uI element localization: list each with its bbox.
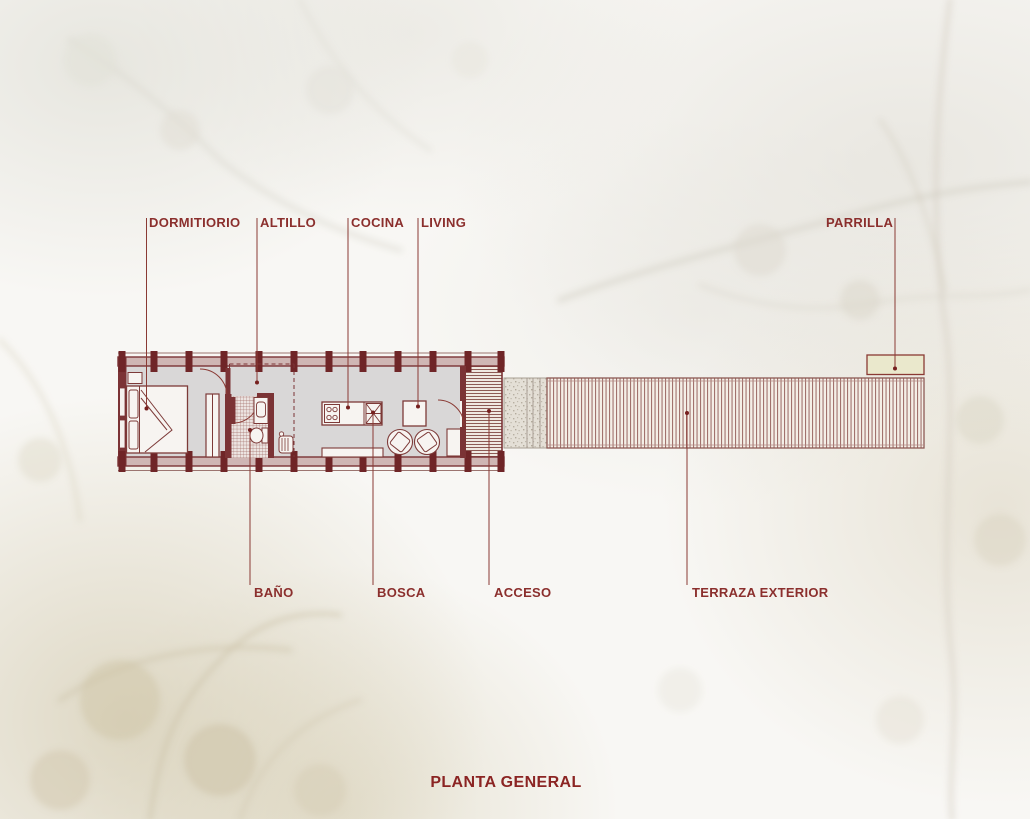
window-icon [120,420,125,448]
label-acceso: ACCESO [494,586,551,600]
bench-icon [322,448,383,457]
bottom-wall [118,457,504,466]
gravel-path-icon [504,378,547,448]
label-terraza-exterior: TERRAZA EXTERIOR [692,586,829,600]
toilet-icon [250,428,268,443]
bed-icon [127,386,188,453]
label-parrilla: PARRILLA [826,216,893,230]
label-living: LIVING [421,216,466,230]
chair-icon [388,430,413,455]
label-bosca: BOSCA [377,586,425,600]
chair-icon [415,430,440,455]
deck-planks-icon [547,378,924,448]
label-dormitorio: DORMITIORIO [149,216,240,230]
top-wall [118,357,504,366]
window-icon [120,388,125,416]
acceso-deck-icon [466,366,502,457]
page-title: PLANTA GENERAL [430,774,581,792]
cabinet-icon [447,429,461,456]
label-bano: BAÑO [254,586,293,600]
label-altillo: ALTILLO [260,216,316,230]
sink-icon [254,398,268,424]
nightstand-icon [128,373,142,384]
label-cocina: COCINA [351,216,404,230]
wardrobe-icon [206,394,219,457]
floor-plan [0,0,1030,819]
table-icon [403,401,426,426]
